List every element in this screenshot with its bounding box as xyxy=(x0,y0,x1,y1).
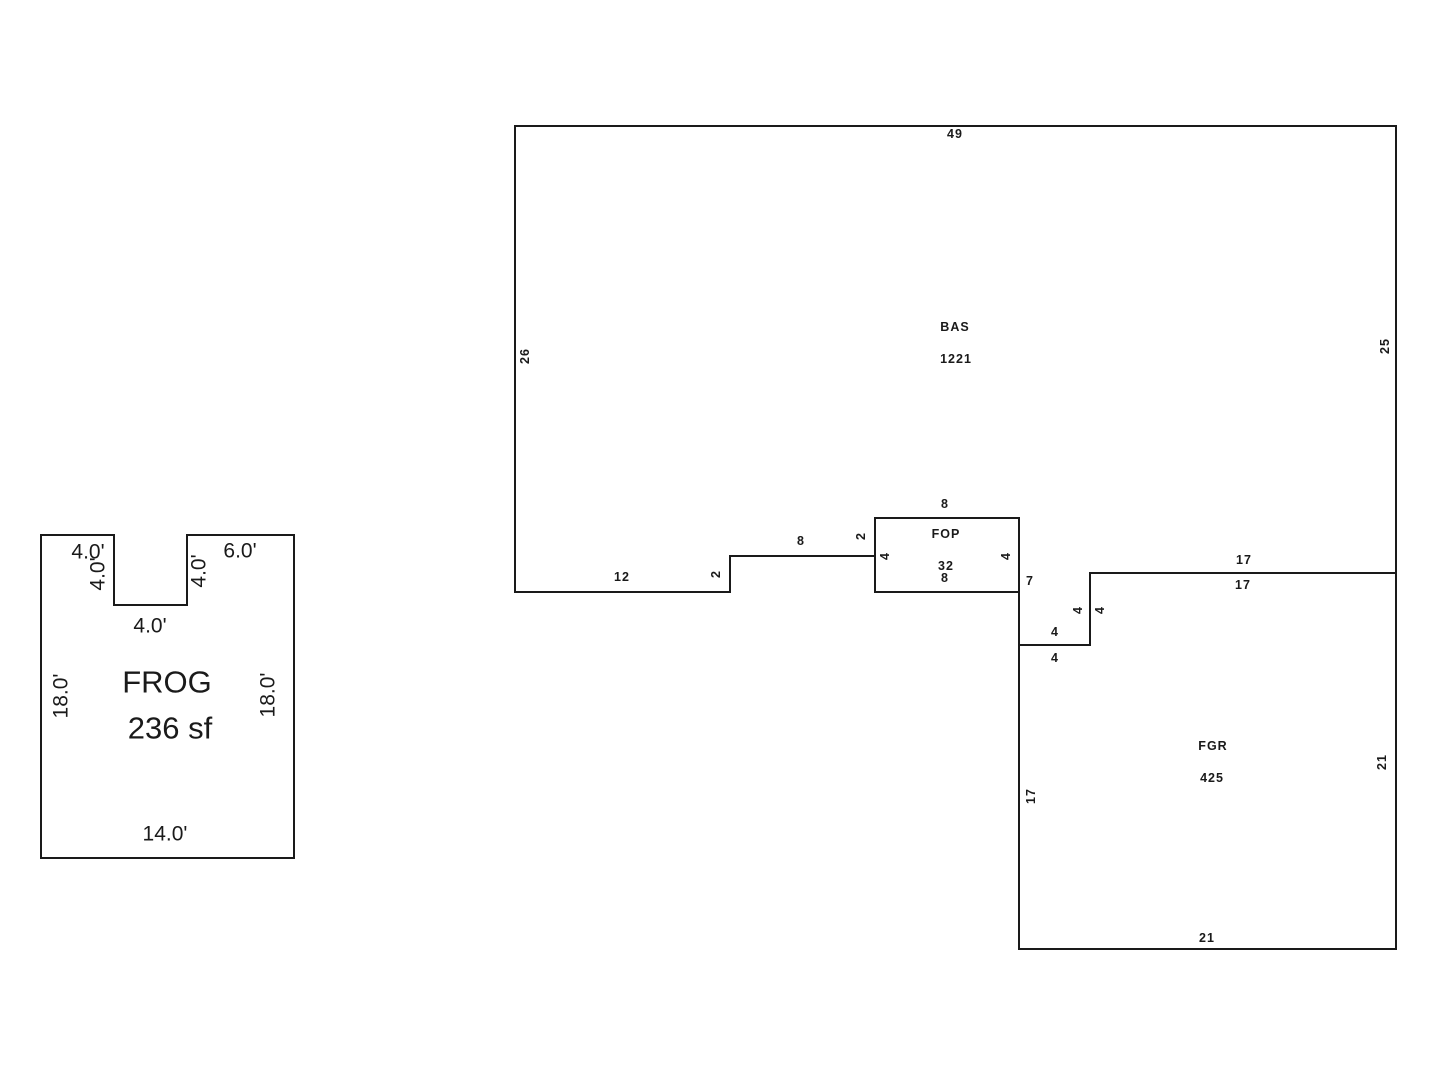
fgr-dim-step-h: 4 xyxy=(1051,652,1059,665)
frog-dim-notch-bottom: 4.0' xyxy=(133,616,166,637)
bas-dim-right: 25 xyxy=(1379,338,1392,354)
fop-name: FOP xyxy=(932,528,961,541)
bas-dim-jog: 7 xyxy=(1026,575,1034,588)
floorplan-linework xyxy=(0,0,1440,1080)
fgr-dim-step-v: 4 xyxy=(1094,606,1107,614)
frog-dim-notch-left: 4.0' xyxy=(88,557,109,590)
fgr-outline xyxy=(1019,573,1396,949)
frog-area: 236 sf xyxy=(128,713,212,744)
bas-dim-left: 26 xyxy=(519,348,532,364)
frog-dim-left: 18.0' xyxy=(51,674,72,719)
bas-dim-step-h: 4 xyxy=(1051,626,1059,639)
frog-dim-top-right: 6.0' xyxy=(223,541,256,562)
fgr-dim-bottom: 21 xyxy=(1199,932,1215,945)
floorplan-sketch-canvas: 49 26 25 BAS 1221 12 2 8 2 7 17 4 4 8 FO… xyxy=(0,0,1440,1080)
bas-dim-bottom-left: 12 xyxy=(614,571,630,584)
bas-dim-rise-left: 2 xyxy=(710,570,723,578)
bas-dim-step-v: 4 xyxy=(1072,606,1085,614)
frog-dim-bottom: 14.0' xyxy=(143,824,188,845)
fgr-dim-left: 17 xyxy=(1025,788,1038,804)
bas-name: BAS xyxy=(940,321,969,334)
frog-dim-notch-right: 4.0' xyxy=(189,554,210,587)
fop-dim-left: 4 xyxy=(879,552,892,560)
frog-name: FROG xyxy=(122,667,212,698)
bas-outline xyxy=(515,126,1396,645)
fgr-dim-right: 21 xyxy=(1376,754,1389,770)
fgr-dim-top: 17 xyxy=(1235,579,1251,592)
fgr-area: 425 xyxy=(1200,772,1224,785)
fgr-name: FGR xyxy=(1198,740,1227,753)
bas-dim-bottom-right: 17 xyxy=(1236,554,1252,567)
fop-dim-bottom: 8 xyxy=(941,572,949,585)
bas-area: 1221 xyxy=(940,353,972,366)
fop-dim-right: 4 xyxy=(1000,552,1013,560)
fop-dim-top: 8 xyxy=(941,498,949,511)
frog-dim-right: 18.0' xyxy=(258,673,279,718)
bas-dim-rise-right: 2 xyxy=(855,532,868,540)
bas-dim-bottom-mid: 8 xyxy=(797,535,805,548)
bas-dim-top: 49 xyxy=(947,128,963,141)
